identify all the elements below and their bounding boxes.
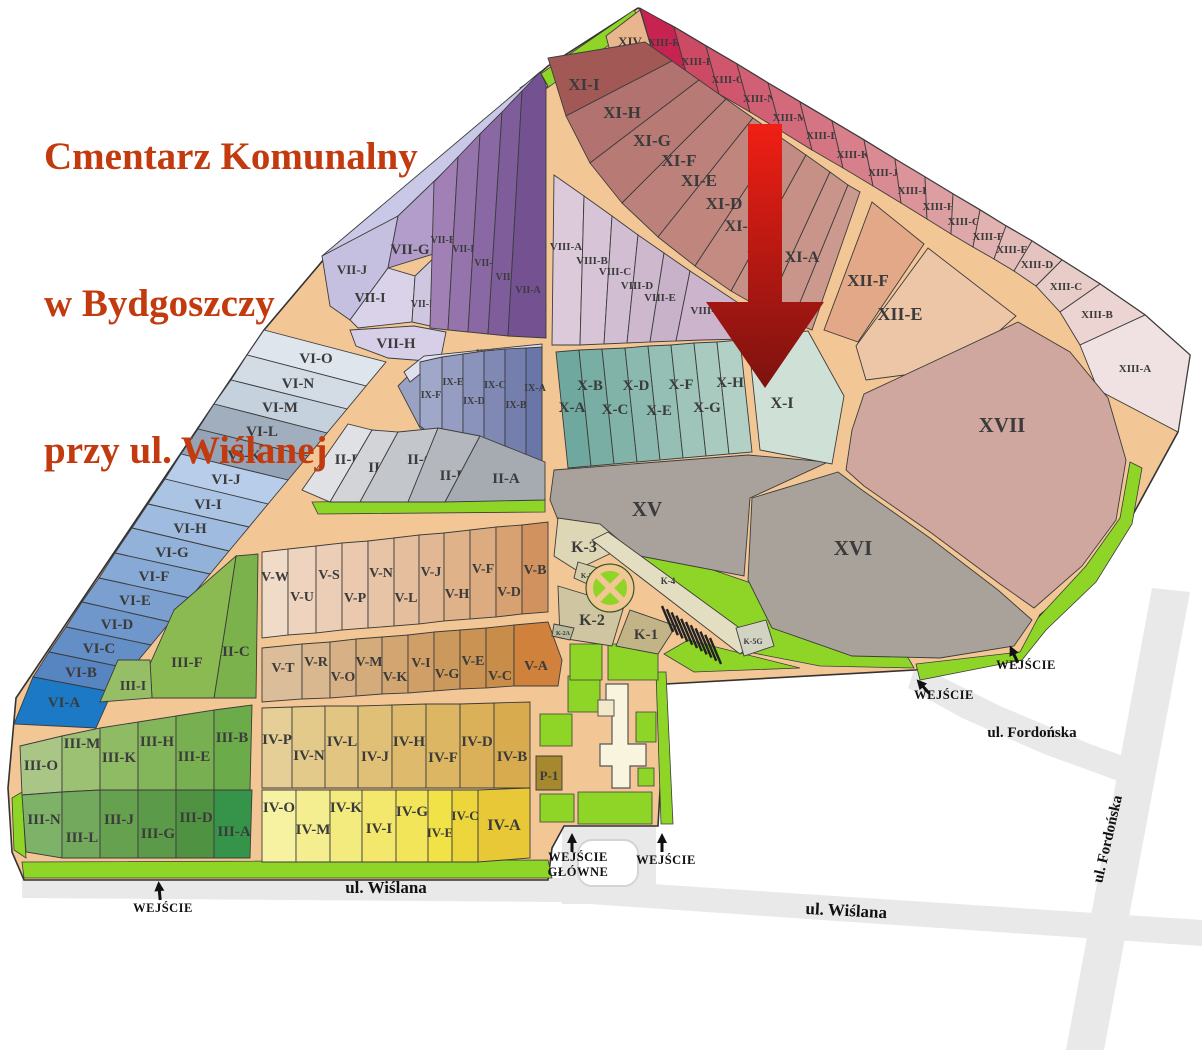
section-label-IV-B: IV-B xyxy=(497,749,528,765)
section-label-V-J: V-J xyxy=(421,565,442,580)
section-label-V-U: V-U xyxy=(290,590,314,605)
section-label-XIII-P: XIII-P xyxy=(681,56,712,68)
section-label-XVII: XVII xyxy=(979,413,1026,437)
section-label-V-F: V-F xyxy=(472,562,494,577)
section-label-XII-E: XII-E xyxy=(877,304,922,324)
section-label-XI-G: XI-G xyxy=(633,131,671,150)
section-label-V-L: V-L xyxy=(394,591,417,606)
section-label-III-N: III-N xyxy=(27,812,61,828)
section-III-H xyxy=(138,716,176,790)
section-label-V-K: V-K xyxy=(383,670,408,685)
section-label-VIII-E: VIII-E xyxy=(644,292,676,304)
green-area xyxy=(22,860,552,878)
green-area xyxy=(570,644,602,680)
section-label-K-5G: K-5G xyxy=(743,637,762,646)
section-label-XIII-A: XIII-A xyxy=(1119,363,1151,375)
section-III-G xyxy=(138,790,176,858)
green-area xyxy=(540,794,574,822)
section-IV-F xyxy=(426,704,460,788)
entrance-label: GŁÓWNE xyxy=(548,865,609,879)
section-V-O xyxy=(330,639,356,698)
section-label-III-F: III-F xyxy=(171,655,203,671)
section-label-III-H: III-H xyxy=(140,734,175,750)
section-label-XIII-L: XIII-L xyxy=(806,130,838,142)
section-V-K xyxy=(382,635,408,694)
entrance-label: WEJŚCIE xyxy=(548,850,608,864)
section-label-IV-I: IV-I xyxy=(366,821,393,837)
map-title: Cmentarz Komunalny w Bydgoszczy przy ul.… xyxy=(44,34,418,573)
section-label-VI-C: VI-C xyxy=(83,641,116,657)
entrance-label: WEJŚCIE xyxy=(914,688,974,702)
street-ul-fordonska xyxy=(1066,588,1190,1050)
section-label-IX-A: IX-A xyxy=(524,383,546,394)
section-label-III-I: III-I xyxy=(120,679,146,694)
entrance-label: WEJŚCIE xyxy=(996,658,1056,672)
cemetery-map-page: XIVXIII-RXIII-PXIII-OXIII-NXIII-MXIII-LX… xyxy=(0,0,1202,1050)
section-label-V-H: V-H xyxy=(445,587,470,602)
section-label-IV-C: IV-C xyxy=(451,808,478,823)
section-label-XV: XV xyxy=(632,497,662,521)
section-label-IV-O: IV-O xyxy=(263,800,295,816)
section-label-K-4: K-4 xyxy=(661,576,676,586)
section-label-VI-E: VI-E xyxy=(119,593,151,609)
green-area xyxy=(568,676,600,712)
section-IV-C xyxy=(452,790,478,862)
section-label-III-M: III-M xyxy=(64,736,101,752)
section-III-L xyxy=(62,790,100,858)
section-label-XI-H: XI-H xyxy=(603,103,641,122)
section-label-V-I: V-I xyxy=(411,656,430,671)
section-V-D xyxy=(496,525,522,617)
section-label-IV-D: IV-D xyxy=(461,734,493,750)
section-IV-J xyxy=(358,705,392,788)
section-label-XII-F: XII-F xyxy=(847,271,889,290)
section-V-H xyxy=(444,530,470,621)
section-label-XIII-E: XIII-E xyxy=(996,244,1028,256)
section-label-X-D: X-D xyxy=(623,378,650,394)
section-label-VI-D: VI-D xyxy=(101,617,134,633)
entrance-label: WEJŚCIE xyxy=(636,853,696,867)
section-label-K-1: K-1 xyxy=(634,627,658,643)
section-label-XVI: XVI xyxy=(834,536,873,560)
section-label-III-O: III-O xyxy=(24,758,58,774)
section-label-XI-I: XI-I xyxy=(568,75,600,94)
section-label-XIII-F: XIII-F xyxy=(972,231,1003,243)
section-label-IV-E: IV-E xyxy=(427,825,453,840)
section-label-V-M: V-M xyxy=(356,655,383,670)
green-area xyxy=(638,768,654,786)
section-label-III-D: III-D xyxy=(179,810,213,826)
section-label-IX-C: IX-C xyxy=(484,380,506,391)
section-label-IV-K: IV-K xyxy=(330,800,363,816)
section-label-VII-A: VII-A xyxy=(515,285,541,296)
section-label-IV-H: IV-H xyxy=(393,734,426,750)
entrance-arrow-icon xyxy=(657,833,667,852)
section-label-XIII-B: XIII-B xyxy=(1081,309,1113,321)
section-label-V-A: V-A xyxy=(524,659,549,674)
section-label-K-2: K-2 xyxy=(579,612,605,629)
section-label-IV-J: IV-J xyxy=(361,749,390,765)
section-label-XI-D: XI-D xyxy=(706,194,743,213)
section-label-IX-B: IX-B xyxy=(505,400,526,411)
section-label-V-P: V-P xyxy=(344,591,367,606)
section-label-IV-A: IV-A xyxy=(487,817,521,834)
section-label-X-B: X-B xyxy=(577,378,603,394)
section-label-II-A: II-A xyxy=(492,471,520,487)
section-label-XIII-I: XIII-I xyxy=(898,185,927,197)
section-label-XIII-N: XIII-N xyxy=(743,93,775,105)
section-IV-B xyxy=(494,702,530,788)
section-label-VI-A: VI-A xyxy=(48,695,81,711)
section-label-III-G: III-G xyxy=(141,826,176,842)
section-IV-G xyxy=(396,790,428,862)
section-label-III-J: III-J xyxy=(104,812,135,828)
section-label-VIII-D: VIII-D xyxy=(621,280,653,292)
section-label-X-A: X-A xyxy=(559,400,586,416)
section-label-IX-D: IX-D xyxy=(463,396,485,407)
section-label-IV-G: IV-G xyxy=(396,804,429,820)
section-label-VIII-A: VIII-A xyxy=(550,241,582,253)
section-label-III-E: III-E xyxy=(178,749,211,765)
section-label-X-G: X-G xyxy=(693,400,721,416)
section-label-V-R: V-R xyxy=(304,655,329,670)
green-area xyxy=(578,792,652,824)
section-label-VIII-C: VIII-C xyxy=(599,266,631,278)
section-label-XIII-H: XIII-H xyxy=(922,201,955,213)
section-label-IV-N: IV-N xyxy=(293,748,325,764)
section-label-IX-F: IX-F xyxy=(421,390,442,401)
section-label-XIII-J: XIII-J xyxy=(868,167,898,179)
section-label-XIII-D: XIII-D xyxy=(1021,259,1053,271)
section-label-IV-P: IV-P xyxy=(262,732,292,748)
section-label-K-2A: K-2A xyxy=(556,631,571,637)
section-IV-N xyxy=(292,706,325,788)
map-title-line-3: przy ul. Wiślanej xyxy=(44,426,418,475)
section-label-V-C: V-C xyxy=(488,669,512,684)
entrance-building-annex xyxy=(598,700,614,716)
section-label-XIII-K: XIII-K xyxy=(836,149,869,161)
section-label-IV-M: IV-M xyxy=(296,822,331,838)
section-III-B xyxy=(214,705,252,790)
section-label-XI-F: XI-F xyxy=(662,151,697,170)
section-label-XIII-G: XIII-G xyxy=(947,216,980,228)
map-title-line-2: w Bydgoszczy xyxy=(44,279,418,328)
section-label-V-G: V-G xyxy=(435,667,460,682)
section-label-X-C: X-C xyxy=(602,402,629,418)
street-label: ul. Wiślana xyxy=(345,878,427,897)
green-area xyxy=(540,714,572,746)
section-label-XI-E: XI-E xyxy=(681,171,717,190)
section-label-IX-E: IX-E xyxy=(442,377,463,388)
street-label: ul. Fordońska xyxy=(987,725,1077,741)
section-IX-A xyxy=(526,347,542,470)
section-label-IV-F: IV-F xyxy=(428,750,458,766)
section-label-IV-L: IV-L xyxy=(327,734,358,750)
section-label-V-B: V-B xyxy=(523,563,546,578)
section-label-V-O: V-O xyxy=(331,670,356,685)
section-label-VI-B: VI-B xyxy=(65,665,97,681)
green-area xyxy=(636,712,656,742)
section-label-XIII-C: XIII-C xyxy=(1050,281,1082,293)
section-label-P-1: P-1 xyxy=(540,768,559,783)
section-label-III-K: III-K xyxy=(102,750,137,766)
section-label-X-I: X-I xyxy=(770,395,793,412)
section-label-III-A: III-A xyxy=(217,824,251,840)
entrance-label: WEJŚCIE xyxy=(133,901,193,915)
section-label-XI-A: XI-A xyxy=(785,249,820,266)
section-label-III-L: III-L xyxy=(66,830,99,846)
section-label-V-D: V-D xyxy=(497,585,521,600)
section-label-X-E: X-E xyxy=(646,403,672,419)
section-label-K-3: K-3 xyxy=(571,539,597,556)
map-title-line-1: Cmentarz Komunalny xyxy=(44,132,418,181)
section-label-V-E: V-E xyxy=(461,654,484,669)
section-label-X-H: X-H xyxy=(716,375,744,391)
section-label-X-F: X-F xyxy=(669,377,694,393)
section-label-V-T: V-T xyxy=(271,661,295,676)
section-V-R xyxy=(302,642,330,699)
section-label-III-B: III-B xyxy=(216,730,249,746)
